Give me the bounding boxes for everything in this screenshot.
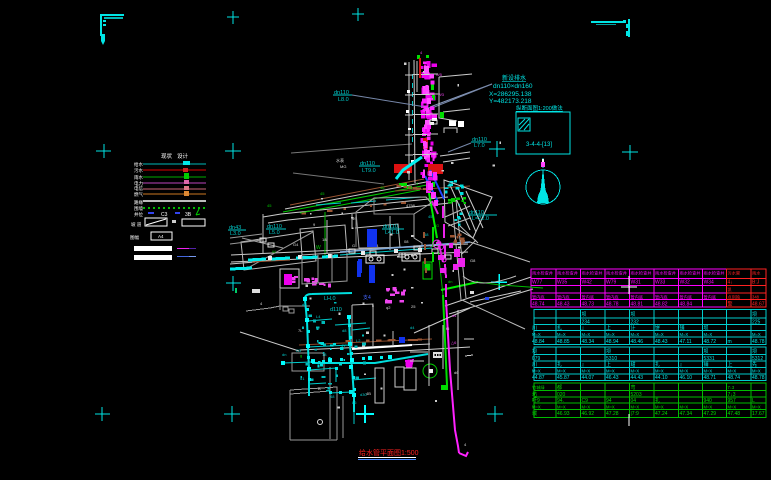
svg-text:雨水检查井: 雨水检查井 (655, 270, 676, 277)
svg-text:25: 25 (411, 304, 416, 309)
svg-text:坊: 坊 (532, 391, 537, 398)
svg-text:m: m (728, 339, 732, 345)
svg-text:46.10: 46.10 (680, 375, 693, 381)
svg-text:3-4-4-[13]: 3-4-4-[13] (526, 142, 552, 148)
svg-text:M=X: M=X (606, 369, 615, 374)
svg-text:18: 18 (322, 352, 327, 357)
svg-text:给水: 给水 (134, 161, 143, 168)
svg-text:M=X: M=X (655, 369, 664, 374)
svg-text:上: 上 (728, 361, 733, 368)
svg-text:坝: 坝 (606, 348, 611, 355)
svg-text:M=X: M=X (606, 405, 615, 410)
svg-text:48.84: 48.84 (680, 302, 693, 308)
svg-text:46.93: 46.93 (557, 411, 570, 417)
svg-text:坝: 坝 (704, 348, 709, 355)
svg-text:B:J: B:J (752, 280, 760, 286)
svg-text:M=X: M=X (557, 369, 566, 374)
svg-text:M=X: M=X (728, 369, 737, 374)
svg-text:L6: L6 (352, 400, 357, 405)
svg-text:雨水: 雨水 (752, 270, 761, 277)
svg-text:管内底: 管内底 (582, 294, 595, 301)
svg-text:M=X: M=X (728, 405, 737, 410)
svg-text:雨水检查井: 雨水检查井 (532, 270, 553, 277)
svg-text:W42: W42 (582, 280, 593, 286)
svg-text:48: 48 (330, 394, 335, 399)
svg-text:W34: W34 (704, 280, 715, 286)
svg-text:M=X: M=X (680, 332, 689, 337)
svg-text:4Y: 4Y (341, 343, 346, 348)
svg-text:警: 警 (728, 301, 733, 308)
svg-text:坝: 坝 (752, 311, 757, 318)
svg-text:都: 都 (557, 385, 562, 391)
svg-text:48.81: 48.81 (631, 302, 644, 308)
svg-text:44.10: 44.10 (655, 375, 668, 381)
svg-text:M=X: M=X (752, 405, 761, 410)
svg-text:48.34: 48.34 (582, 339, 595, 345)
svg-text:48.85: 48.85 (557, 339, 570, 345)
svg-text:48.84: 48.84 (532, 339, 545, 345)
svg-text:管内底: 管内底 (704, 294, 717, 301)
svg-text:48.43: 48.43 (557, 302, 570, 308)
svg-text:d8: d8 (342, 328, 347, 333)
svg-text:q2: q2 (386, 305, 391, 310)
svg-text:坝: 坝 (532, 348, 537, 355)
svg-text:坝: 坝 (752, 348, 757, 355)
svg-text:管内底: 管内底 (680, 294, 693, 301)
svg-text:46: 46 (380, 185, 385, 190)
svg-text:04: 04 (631, 398, 637, 404)
svg-text:雨水检查井: 雨水检查井 (631, 270, 652, 277)
svg-text:吓9: 吓9 (532, 398, 540, 404)
svg-text:计: 计 (631, 325, 636, 332)
svg-text:48.72: 48.72 (704, 339, 717, 345)
svg-text:M=X: M=X (680, 405, 689, 410)
svg-text:M=X: M=X (582, 405, 591, 410)
svg-text:铺: 铺 (680, 325, 685, 332)
svg-text:d110: d110 (330, 307, 342, 313)
svg-text:L7.0: L7.0 (474, 143, 485, 149)
svg-text:新设排水: 新设排水 (502, 74, 526, 82)
svg-text:管内底: 管内底 (557, 294, 570, 301)
svg-text:d: d (458, 202, 460, 207)
svg-text:L: L (752, 398, 755, 404)
svg-text:dn: dn (282, 352, 286, 357)
svg-text:燃气: 燃气 (134, 191, 143, 198)
svg-text:94: 94 (606, 398, 612, 404)
svg-text:LH.0: LH.0 (324, 296, 336, 302)
svg-text:G8: G8 (470, 258, 476, 263)
svg-text:A4: A4 (158, 234, 164, 239)
svg-text:48.71: 48.71 (704, 375, 717, 381)
svg-text:47.29: 47.29 (704, 411, 717, 417)
svg-text:4758: 4758 (406, 203, 416, 208)
svg-text:上: 上 (606, 325, 611, 332)
svg-text:225: 225 (752, 320, 761, 326)
svg-text:点刻独: 点刻独 (728, 294, 741, 301)
svg-text:d6: d6 (454, 370, 459, 375)
svg-text:支4: 支4 (363, 294, 371, 301)
svg-text:W31: W31 (631, 280, 642, 286)
svg-text:47.34: 47.34 (680, 411, 693, 417)
svg-text:44.43: 44.43 (631, 375, 644, 381)
svg-text:M=X: M=X (557, 332, 566, 337)
svg-text:X=286295.138: X=286295.138 (489, 91, 532, 98)
svg-text:46.43: 46.43 (606, 375, 619, 381)
svg-text:3B: 3B (185, 212, 192, 218)
svg-text:L5.0: L5.0 (269, 230, 280, 236)
svg-text:城: 城 (532, 410, 537, 417)
svg-text:坡 道: 坡 道 (131, 221, 142, 228)
svg-text:M=X: M=X (704, 332, 713, 337)
svg-text:L4: L4 (316, 314, 321, 319)
svg-text:』: 』 (582, 362, 587, 368)
svg-text:污水窨: 污水窨 (728, 270, 741, 277)
svg-text:雨水检查井: 雨水检查井 (582, 270, 603, 277)
svg-text:Y=482173.218: Y=482173.218 (489, 98, 532, 105)
svg-text:94.: 94. (557, 398, 564, 404)
svg-text:d1: d1 (302, 302, 307, 307)
svg-text:M=X: M=X (532, 405, 541, 410)
svg-text:957: 957 (728, 398, 737, 404)
svg-text:M=X: M=X (631, 369, 640, 374)
svg-text:48.78: 48.78 (752, 339, 765, 345)
svg-text:M=X: M=X (752, 369, 761, 374)
svg-text:路缘: 路缘 (134, 199, 143, 206)
svg-text:C3: C3 (161, 212, 168, 218)
svg-text:污水: 污水 (134, 167, 143, 174)
svg-text:dn110×dn160: dn110×dn160 (493, 83, 533, 90)
svg-text:川: 川 (532, 326, 537, 332)
svg-text:48.73: 48.73 (582, 302, 595, 308)
svg-text:』: 』 (582, 326, 587, 332)
svg-text:d4: d4 (410, 325, 415, 330)
svg-text:L2: L2 (356, 338, 361, 343)
svg-text:M=X: M=X (680, 369, 689, 374)
svg-text:L3.0: L3.0 (230, 231, 241, 237)
svg-text:饼: 饼 (655, 325, 660, 332)
svg-text:48.74: 48.74 (532, 302, 545, 308)
svg-text:W33: W33 (655, 280, 666, 286)
svg-text:围墙: 围墙 (134, 205, 143, 212)
svg-text:48.46: 48.46 (631, 339, 644, 345)
svg-text:08: 08 (404, 239, 409, 244)
svg-text:M=X: M=X (532, 332, 541, 337)
svg-text:M=X: M=X (752, 332, 761, 337)
svg-text:M=X: M=X (582, 332, 591, 337)
svg-text:ds: ds (452, 313, 456, 318)
svg-text:44.07: 44.07 (582, 375, 595, 381)
svg-text:坝: 坝 (631, 311, 636, 318)
svg-text:MG: MG (340, 164, 346, 169)
svg-text:现状: 现状 (161, 152, 173, 160)
svg-text:M=X: M=X (631, 405, 640, 410)
svg-text:竹城绿: 竹城绿 (532, 384, 545, 391)
svg-text:管内底: 管内底 (606, 294, 619, 301)
svg-text:M=X: M=X (582, 369, 591, 374)
svg-text:先: 先 (752, 361, 757, 368)
svg-text:M=X: M=X (532, 369, 541, 374)
svg-text:18: 18 (322, 237, 327, 242)
svg-text:M=X: M=X (655, 332, 664, 337)
svg-text:g: g (300, 353, 302, 358)
svg-text:坝: 坝 (582, 311, 587, 318)
svg-text:dn: dn (448, 279, 452, 284)
svg-text:7L: 7L (298, 328, 303, 333)
svg-text:设计: 设计 (177, 152, 189, 160)
svg-text:47.28: 47.28 (606, 411, 619, 417)
svg-text:坝: 坝 (704, 325, 709, 332)
svg-text:雨水检查井: 雨水检查井 (704, 270, 725, 277)
svg-text:48.74: 48.74 (728, 375, 741, 381)
svg-text:48.82: 48.82 (655, 302, 668, 308)
svg-text:管内底: 管内底 (655, 294, 668, 301)
svg-text:45: 45 (267, 203, 272, 208)
svg-text:扎: 扎 (655, 397, 660, 404)
svg-text:d1: d1 (300, 376, 305, 381)
svg-text:川: 川 (532, 362, 537, 368)
svg-text:k: k (372, 303, 374, 308)
svg-text:雨水: 雨水 (134, 174, 143, 181)
svg-text:B: B (318, 386, 321, 391)
svg-text:雨水检查井: 雨水检查井 (606, 270, 627, 277)
svg-text:管内底: 管内底 (532, 294, 545, 301)
svg-text:48.94: 48.94 (606, 339, 619, 345)
svg-text:L8.0: L8.0 (338, 97, 349, 103)
svg-text:△6: △6 (451, 340, 457, 345)
svg-text:G4: G4 (293, 242, 299, 247)
svg-text:940: 940 (704, 398, 713, 404)
svg-text:W: W (316, 245, 321, 251)
svg-text:电信: 电信 (134, 185, 143, 192)
svg-text:水表: 水表 (336, 157, 344, 163)
svg-text:L=22.0: L=22.0 (472, 216, 489, 222)
svg-text:M=X: M=X (606, 332, 615, 337)
svg-text:管内底: 管内底 (631, 294, 644, 301)
svg-text:W: W (272, 249, 276, 254)
svg-text:甜: 甜 (631, 361, 636, 368)
svg-text:48.78: 48.78 (752, 375, 765, 381)
svg-text:45.87: 45.87 (557, 375, 570, 381)
svg-text:图幅: 图幅 (130, 234, 139, 241)
svg-text:雨水检查井: 雨水检查井 (557, 270, 578, 277)
svg-text:』: 』 (680, 362, 685, 368)
svg-text:|7:9: |7:9 (631, 411, 639, 417)
svg-text:纵断面图1:200做法: 纵断面图1:200做法 (516, 104, 563, 112)
svg-text:7↓3: 7↓3 (728, 385, 735, 390)
svg-text:G: G (436, 223, 439, 228)
svg-text:47.24: 47.24 (655, 411, 668, 417)
svg-text:45: 45 (428, 214, 433, 219)
svg-text:C5: C5 (296, 348, 302, 353)
svg-text:48.78: 48.78 (606, 302, 619, 308)
svg-text:46.92: 46.92 (582, 411, 595, 417)
svg-text:上: 上 (606, 361, 611, 368)
svg-text:井位: 井位 (134, 211, 143, 218)
svg-text:48.43: 48.43 (655, 339, 668, 345)
svg-text:扎: 扎 (655, 361, 660, 368)
svg-text:W32: W32 (680, 280, 691, 286)
svg-text:铺: 铺 (704, 361, 709, 368)
svg-text:扎: 扎 (557, 361, 562, 368)
svg-text:4B: 4B (366, 391, 371, 396)
svg-text:M=X: M=X (631, 332, 640, 337)
svg-text:44.87: 44.87 (532, 375, 545, 381)
svg-text:W77: W77 (532, 280, 543, 286)
svg-text:47.48: 47.48 (728, 411, 741, 417)
svg-text:LT9.0: LT9.0 (362, 168, 376, 174)
svg-text:M=X: M=X (655, 405, 664, 410)
svg-text:M=X: M=X (557, 405, 566, 410)
svg-text:M=X: M=X (704, 405, 713, 410)
svg-text:348: 348 (752, 295, 760, 300)
svg-text:扎: 扎 (557, 325, 562, 332)
svg-text:雨水检查井: 雨水检查井 (680, 270, 701, 277)
svg-text:48.67: 48.67 (752, 302, 765, 308)
svg-text:d30: d30 (360, 392, 367, 397)
svg-text:W35: W35 (557, 280, 568, 286)
svg-text:弯: 弯 (631, 384, 636, 391)
svg-text:47.11: 47.11 (680, 339, 692, 345)
svg-text:给水管平面图1:500: 给水管平面图1:500 (359, 448, 419, 457)
svg-text:M=X: M=X (704, 369, 713, 374)
svg-text:17.67: 17.67 (752, 411, 765, 417)
svg-text:45: 45 (320, 191, 325, 196)
svg-text:W79: W79 (606, 280, 617, 286)
svg-text:C9: C9 (582, 398, 589, 404)
svg-text:4↓: 4↓ (728, 280, 733, 286)
svg-text:G: G (352, 243, 355, 248)
